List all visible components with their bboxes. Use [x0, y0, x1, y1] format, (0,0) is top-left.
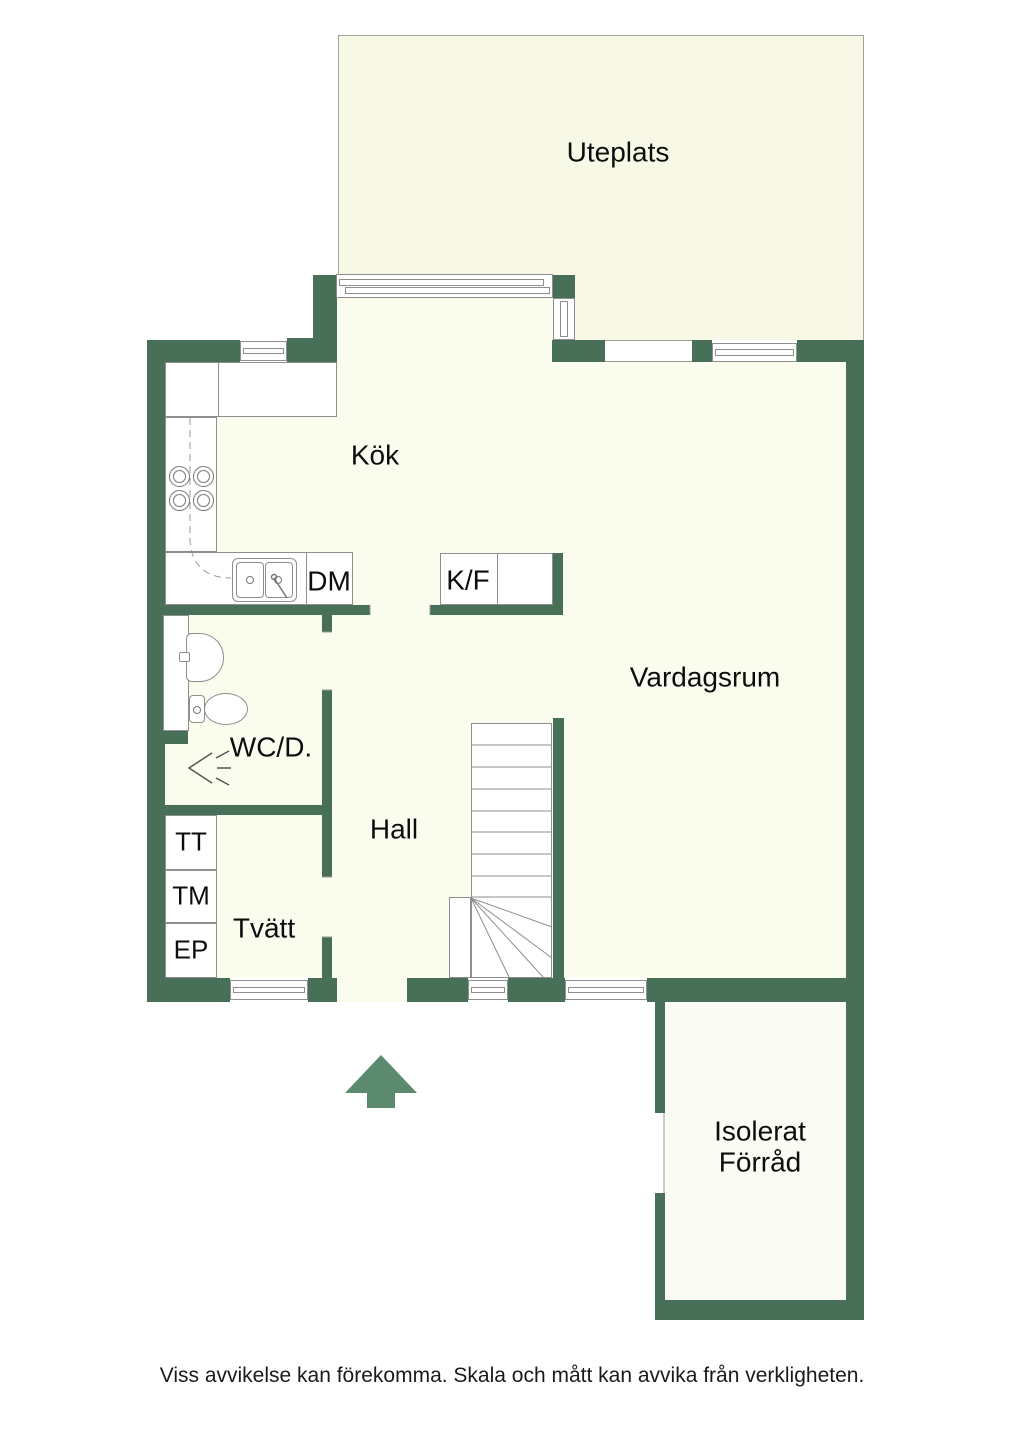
entrance-threshold	[337, 978, 407, 1002]
stove-burner-icon	[193, 490, 214, 511]
label-dishwasher: DM	[307, 565, 351, 596]
wall-segment	[655, 1002, 665, 1113]
window-pane	[715, 349, 794, 356]
wall-segment	[313, 275, 337, 340]
kitchen-floor	[337, 298, 553, 362]
wall-segment	[655, 1300, 864, 1320]
wall-segment	[655, 1193, 665, 1300]
label-fridge-freezer: K/F	[446, 564, 490, 595]
wall-segment	[846, 340, 864, 1320]
wall-segment	[407, 978, 468, 1002]
wall-segment	[322, 937, 332, 978]
window	[553, 298, 575, 340]
wall-segment	[647, 978, 864, 1002]
wall-segment	[692, 340, 712, 362]
wall-segment	[553, 275, 575, 298]
wall-segment	[308, 978, 337, 1002]
window	[230, 980, 308, 1000]
wall-segment	[158, 605, 370, 615]
staircase-winder	[449, 897, 471, 978]
toilet-bowl-icon	[204, 693, 248, 725]
window-pane	[233, 987, 305, 993]
counter-divider	[218, 363, 219, 416]
room-label-laundry: Tvätt	[233, 912, 295, 943]
sink-basin	[265, 562, 293, 598]
stove-burner-icon	[169, 490, 190, 511]
staircase	[471, 723, 552, 978]
kitchen-counter	[165, 362, 337, 417]
stove-burner-icon	[169, 466, 190, 487]
room-label-patio: Uteplats	[567, 136, 670, 167]
wall-segment	[147, 978, 230, 1002]
window	[240, 341, 287, 361]
label-washing-machine: TM	[172, 881, 210, 910]
label-tumble-dryer: TT	[175, 827, 207, 856]
wall-segment	[147, 731, 188, 744]
room-label-hall: Hall	[370, 813, 418, 844]
wall-segment	[322, 690, 332, 805]
window	[468, 980, 508, 1000]
wall-segment	[287, 338, 337, 362]
room-label-living-room: Vardagsrum	[630, 661, 780, 692]
wall-segment	[322, 615, 332, 632]
sliding-door	[336, 274, 553, 298]
disclaimer-text: Viss avvikelse kan förekomma. Skala och …	[160, 1364, 865, 1388]
sliding-door-panel	[339, 279, 544, 286]
wall-segment	[147, 805, 332, 815]
window-pane	[568, 987, 644, 993]
unit-divider	[497, 554, 498, 604]
floor-plan-page: { "colors": { "wall": "#487059", "floor"…	[0, 0, 1024, 1448]
window-pane	[471, 987, 505, 993]
window-pane	[243, 348, 284, 354]
window	[565, 980, 647, 1000]
toilet-tank	[189, 695, 205, 723]
wall-segment	[552, 340, 605, 362]
wall-segment	[147, 340, 240, 362]
patio-opening	[605, 340, 692, 362]
window-pane	[560, 301, 568, 337]
wall-segment	[322, 815, 332, 877]
wall-segment	[508, 978, 565, 1002]
stove-burner-icon	[193, 466, 214, 487]
label-electrical-panel: EP	[174, 935, 209, 964]
window	[712, 343, 797, 362]
room-label-storage: Isolerat Förråd	[675, 1116, 845, 1179]
sliding-door-panel	[345, 287, 550, 294]
wall-segment	[553, 718, 564, 978]
wc-sink-tap	[179, 652, 190, 662]
room-label-wc: WC/D.	[230, 731, 312, 762]
room-label-kitchen: Kök	[351, 439, 399, 470]
entrance-arrow-icon	[345, 1055, 417, 1108]
sink-basin	[236, 562, 264, 598]
wall-segment	[430, 605, 563, 615]
